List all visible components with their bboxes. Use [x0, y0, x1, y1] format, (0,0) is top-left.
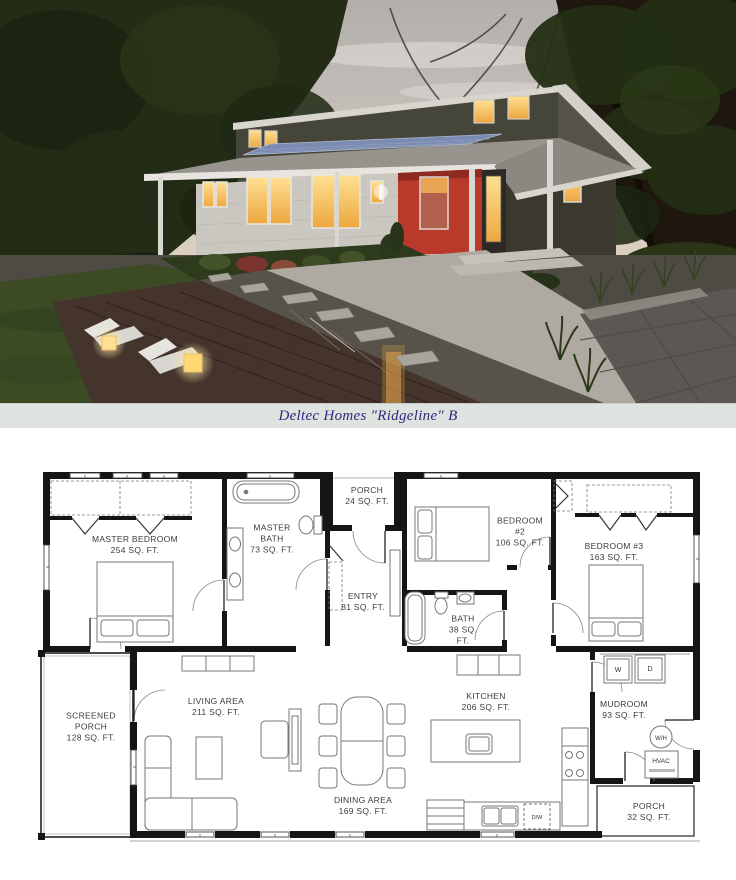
- room-label-mudroom: MUDROOM 93 SQ. FT.: [588, 699, 660, 721]
- room-label-entry: ENTRY 81 SQ. FT.: [331, 591, 395, 613]
- coffee-table: [196, 737, 222, 779]
- kitchen-upper-cabinet: [457, 655, 520, 675]
- hvac-label: HVAC: [652, 758, 670, 765]
- page: Deltec Homes "Ridgeline" B: [0, 0, 736, 880]
- water-heater-label: W/H: [655, 736, 667, 742]
- dining-chair: [387, 768, 405, 788]
- room-label-bedroom-2: BEDROOM #2 106 SQ. FT.: [491, 515, 549, 548]
- red-wall-window-light: [421, 178, 447, 193]
- caption-bar: Deltec Homes "Ridgeline" B: [0, 403, 736, 428]
- room-label-master-bedroom: MASTER BEDROOM 254 SQ. FT.: [92, 534, 178, 556]
- room-label-master-bath: MASTER BATH 73 SQ. FT.: [244, 522, 300, 555]
- screened-porch-outline: [41, 653, 133, 837]
- fixture-labels: W D W/H HVAC D/W: [532, 666, 670, 821]
- house-photo-rendering: [0, 0, 736, 403]
- floor-plan: W D W/H HVAC D/W MASTER BEDROOM 254 SQ. …: [0, 450, 736, 862]
- house-photo: [0, 0, 736, 403]
- caption-text: Deltec Homes "Ridgeline" B: [278, 408, 457, 425]
- buffet-cabinet: [427, 800, 464, 830]
- dining-chair: [319, 704, 337, 724]
- dining-chair: [387, 736, 405, 756]
- room-label-living-area: LIVING AREA 211 SQ. FT.: [174, 696, 258, 718]
- room-label-dining-area: DINING AREA 169 SQ. FT.: [317, 795, 409, 817]
- room-label-bath: BATH 38 SQ. FT.: [445, 613, 481, 646]
- armchair: [261, 721, 288, 758]
- cube-light: [184, 354, 202, 372]
- cube-light: [102, 336, 116, 350]
- furniture: [97, 481, 690, 830]
- room-label-rear-porch: PORCH 32 SQ. FT.: [613, 801, 685, 823]
- dishwasher-label: D/W: [532, 815, 544, 821]
- room-label-bedroom-3: BEDROOM #3 163 SQ. FT.: [568, 541, 660, 563]
- room-label-kitchen: KITCHEN 206 SQ. FT.: [444, 691, 528, 713]
- master-toilet: [314, 516, 322, 534]
- washer-label: W: [615, 667, 622, 674]
- dryer-label: D: [647, 666, 652, 673]
- room-label-front-porch: PORCH 24 SQ. FT.: [335, 485, 399, 507]
- dining-chair: [319, 736, 337, 756]
- bath-toilet: [435, 592, 448, 598]
- dining-chair: [319, 768, 337, 788]
- living-cabinet: [182, 656, 254, 671]
- dining-chair: [387, 704, 405, 724]
- sconce-glow: [374, 185, 388, 199]
- room-label-screened-porch: SCREENED PORCH 128 SQ. FT.: [55, 710, 127, 743]
- front-door-lit: [486, 176, 501, 242]
